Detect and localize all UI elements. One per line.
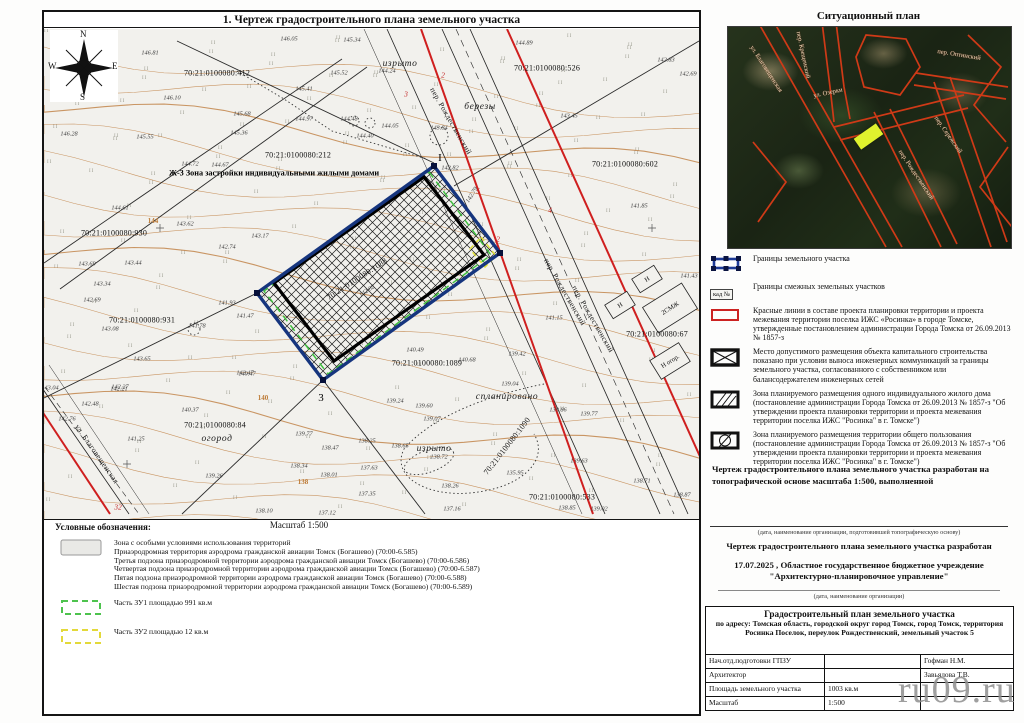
compass-east-label: E (112, 61, 118, 71)
elevation-mark: 144.97 (295, 116, 312, 123)
elevation-mark: 137.63 (360, 465, 377, 472)
cadastral-number: 70:21:0100080:526 (514, 64, 580, 73)
elevation-mark: 146.10 (163, 95, 180, 102)
legend-item: Часть ЗУ1 площадью 991 кв.м (60, 599, 680, 621)
terrain-label: березы (464, 102, 496, 112)
elevation-mark: 143.17 (251, 233, 268, 240)
redline-number: 2 (441, 71, 445, 80)
legend-item: Зона с особыми условиями использования т… (60, 539, 680, 592)
elevation-mark: 142.74 (218, 244, 235, 251)
elevation-mark: 139.77 (580, 411, 597, 418)
topo-basis-note: Чертеж градостроительного плана земельно… (712, 464, 1008, 488)
elevation-mark: 138.47 (321, 445, 338, 452)
elevation-mark: 139.02 (590, 506, 607, 513)
elevation-mark: 145.55 (136, 134, 153, 141)
compass-west-label: W (48, 61, 57, 71)
cadastral-number: 70:21:0100080:412 (184, 69, 250, 78)
contour-elevation-label: 144 (148, 217, 159, 225)
organization-note: 17.07.2025 , Областное государственное б… (712, 560, 1006, 583)
elevation-mark: 142.82 (441, 165, 458, 172)
street-label: ул. Благовещенская (748, 44, 783, 93)
elevation-mark: 143.04 (44, 385, 59, 392)
elevation-mark: 139.60 (415, 403, 432, 410)
elevation-mark: 139.63 (570, 458, 587, 465)
elevation-mark: 145.68 (233, 111, 250, 118)
elevation-mark: 142.83 (657, 57, 674, 64)
elevation-mark: 139.04 (501, 381, 518, 388)
elevation-mark: 137.16 (443, 506, 460, 513)
terrain-label: огород (202, 434, 233, 444)
title-block-cell: Архитектор (706, 669, 825, 682)
legend-item: Место допустимого размещения объекта кап… (710, 347, 1012, 383)
point-marker: I (438, 152, 442, 164)
legend-item: Часть ЗУ2 площадью 12 кв.м (60, 628, 680, 650)
legend-item-text: Зона с особыми условиями использования т… (114, 539, 594, 592)
topo-basis-caption: (дата, наименование организации, подгото… (710, 529, 1008, 536)
kad-number-box: кад № (710, 289, 733, 300)
legend-item-text: Границы земельного участка (753, 254, 850, 263)
legend-item: Красные линии в составе проекта планиров… (710, 306, 1012, 342)
legend-item-text: Место допустимого размещения объекта кап… (753, 347, 1012, 383)
terrain-label: изрыто (383, 59, 418, 69)
drawing-frame: 1. Чертеж градостроительного плана земел… (42, 10, 701, 716)
drawing-title: 1. Чертеж градостроительного плана земел… (44, 12, 699, 28)
elevation-mark: 141.93 (218, 300, 235, 307)
kad-legend-icon: кад № (710, 282, 746, 301)
street-label: пер. Крещенский (795, 31, 812, 79)
elevation-mark: 138.65 (391, 443, 408, 450)
elevation-mark: 139.86 (549, 407, 566, 414)
elevation-mark: 137.12 (318, 510, 335, 517)
redline-legend-icon (710, 306, 746, 328)
title-block-address: по адресу: Томская область, городской ок… (710, 620, 1009, 638)
map-scale-label: Масштаб 1:500 (229, 520, 369, 530)
title-block-cell: Площадь земельного участка (706, 683, 825, 696)
elevation-mark: 138.71 (633, 478, 650, 485)
cadastral-number: 70:21:0100080:1088 (325, 256, 389, 302)
title-block-cell (825, 655, 921, 668)
redline-number: 2 (496, 235, 500, 244)
elevation-mark: 140.49 (406, 347, 423, 354)
divider-line (718, 590, 1000, 591)
right-legend: Границы земельного участкакад №Границы с… (710, 254, 1012, 471)
legend-item: Границы земельного участка (710, 254, 1012, 277)
title-block-title: Градостроительный план земельного участк… (706, 609, 1013, 619)
legend-item: Зона планируемого размещения одного инди… (710, 389, 1012, 425)
elevation-mark: 144.40 (356, 133, 373, 140)
elevation-mark: 139.24 (386, 398, 403, 405)
elevation-mark: 143.44 (124, 260, 141, 267)
elevation-mark: 137.35 (358, 491, 375, 498)
elevation-mark: 143.65 (133, 356, 150, 363)
elevation-mark: 144.05 (381, 123, 398, 130)
boundary-legend-icon (710, 254, 746, 277)
elevation-mark: 146.28 (60, 131, 77, 138)
street-label: ул. Озерки (813, 87, 843, 100)
street-label: ул. Благовещенская (73, 423, 121, 486)
legend-item: кад №Границы смежных земельных участков (710, 282, 1012, 301)
legend-item: Зона планируемого размещения территории … (710, 430, 1012, 466)
elevation-mark: 138.25 (358, 438, 375, 445)
legend-item-text: Красные линии в составе проекта планиров… (753, 306, 1012, 342)
contour-elevation-label: 138 (298, 478, 309, 486)
elevation-mark: 144.72 (181, 161, 198, 168)
divider-line (710, 526, 1008, 527)
legend-item-text: Часть ЗУ2 площадью 12 кв.м (114, 628, 594, 637)
title-block-row: Нач.отд.подготовки ГПЗУГофман Н.М. (706, 654, 1013, 668)
zu2-legend-icon (60, 628, 106, 650)
watermark: ru09.ru (898, 668, 1016, 712)
elevation-mark: 139.77 (295, 431, 312, 438)
elevation-mark: 142.76 (58, 416, 75, 423)
redline-number: 32 (114, 503, 122, 512)
street-label: пер. Рождественский (897, 149, 935, 201)
cadastral-number: 70:21:0100080:212 (265, 151, 331, 160)
legend-item-text: Границы смежных земельных участков (753, 282, 885, 291)
elevation-mark: 141.25 (127, 436, 144, 443)
elevation-mark: 138.85 (558, 505, 575, 512)
terrain-label: спланировано (476, 392, 538, 402)
elevation-mark: 140.37 (181, 407, 198, 414)
terrain-label: изрыто (417, 444, 452, 454)
street-label: пер. Рождественский (428, 86, 474, 156)
elevation-mark: 141.85 (630, 203, 647, 210)
elevation-mark: 146.81 (141, 50, 158, 57)
situational-plan-title: Ситуационный план (727, 10, 1010, 22)
cadastral-number: 70:21:0100080:602 (592, 160, 658, 169)
elevation-mark: 138.34 (290, 463, 307, 470)
elevation-mark: 142.02 (358, 283, 376, 298)
elevation-mark: 146.05 (280, 36, 297, 43)
cadastral-number: 70:21:0100080:1090 (482, 416, 532, 477)
elevation-mark: 143.62 (176, 221, 193, 228)
cadastral-number: 70:21:0100080:67 (626, 330, 688, 339)
cadastral-number: 70:21:0100080:84 (184, 421, 246, 430)
legend-item-text: Зона планируемого размещения одного инди… (753, 389, 1012, 425)
legend-item-text: Часть ЗУ1 площадью 991 кв.м (114, 599, 594, 608)
elevation-mark: 138.10 (255, 508, 272, 515)
street-label: пер. Сережский (933, 115, 964, 155)
elevation-mark: 143.84 (430, 125, 447, 132)
redline-number: 5 (476, 187, 480, 196)
left-legend: Зона с особыми условиями использования т… (60, 539, 680, 657)
topographic-map: IIIIIIIIIIIIIIIIIIIIIIIIIIIIIIIIIIIIIIII… (44, 29, 699, 520)
elevation-mark: 138.01 (320, 472, 337, 479)
elevation-mark: 144.61 (111, 205, 128, 212)
legend-item-text: Зона планируемого размещения территории … (753, 430, 1012, 466)
elevation-mark: 145.34 (343, 37, 360, 44)
cadastral-number: 70:21:0100080:1089 (392, 359, 462, 368)
elevation-mark: 141.47 (236, 313, 253, 320)
elevation-mark: 144.67 (211, 162, 228, 169)
zoning-label: Ж-3 Зона застройки индивидуальными жилым… (169, 169, 379, 178)
elevation-mark: 139.26 (205, 473, 222, 480)
elevation-mark: 139.42 (508, 351, 525, 358)
common-legend-icon (710, 430, 746, 455)
elevation-mark: 143.08 (101, 326, 118, 333)
elevation-mark: 135.95 (506, 470, 523, 477)
elevation-mark: 141.15 (545, 315, 562, 322)
developed-note: Чертеж градостроительного плана земельно… (710, 541, 1008, 551)
elevation-mark: 138.72 (430, 454, 447, 461)
elevation-mark: 143.69 (78, 261, 95, 268)
organization-caption: (дата, наименование организации) (710, 593, 1008, 600)
elevation-mark: 145.52 (330, 70, 347, 77)
title-block-cell: Гофман Н.М. (921, 655, 1013, 668)
elevation-mark: 145.41 (295, 86, 312, 93)
elevation-mark: 142.27 (111, 384, 128, 391)
elevation-mark: 138.87 (673, 492, 690, 499)
elevation-mark: 141.43 (680, 273, 697, 280)
situational-street-labels: ул. Благовещенскаяпер. Крещенскийул. Озе… (728, 27, 1011, 248)
map-labels-layer: 146.81145.83146.05145.34145.52145.41144.… (44, 29, 699, 519)
elevation-mark: 139.07 (423, 416, 440, 423)
elevation-mark: 143.45 (560, 113, 577, 120)
house-legend-icon (710, 389, 746, 414)
cadastral-number: 70:21:0100080:931 (109, 316, 175, 325)
zu1-legend-icon (60, 599, 106, 621)
redline-number: 3 (404, 90, 408, 99)
elevation-mark: 138.26 (441, 483, 458, 490)
contour-elevation-label: 140 (258, 394, 269, 402)
redline-number: 4 (548, 206, 552, 215)
special-legend-icon (60, 539, 106, 561)
elevation-mark: 143.34 (93, 281, 110, 288)
compass-south-label: S (80, 92, 85, 102)
street-label: пер. Оптинский (937, 48, 981, 62)
left-legend-title: Условные обозначения: (55, 522, 151, 532)
elevation-mark: 142.69 (679, 71, 696, 78)
elevation-mark: 144.48 (340, 116, 357, 123)
capital-legend-icon (710, 347, 746, 372)
title-block-cell: Масштаб (706, 697, 825, 710)
title-block-cell: Нач.отд.подготовки ГПЗУ (706, 655, 825, 668)
cadastral-number: 70:21:0100080:930 (81, 229, 147, 238)
elevation-mark: 141.78 (188, 323, 205, 330)
compass-north-label: N (80, 29, 87, 39)
elevation-mark: 142.48 (81, 401, 98, 408)
situational-plan-map: ул. Благовещенскаяпер. Крещенскийул. Озе… (727, 26, 1012, 249)
elevation-mark: 142.69 (83, 297, 100, 304)
compass-rose: N W E S (50, 30, 118, 102)
elevation-mark: 145.36 (230, 130, 247, 137)
elevation-mark: 144.89 (515, 40, 532, 47)
point-marker: 3 (318, 392, 324, 404)
cadastral-number: 70:21:0100080:533 (529, 493, 595, 502)
elevation-mark: 140.47 (238, 371, 255, 378)
